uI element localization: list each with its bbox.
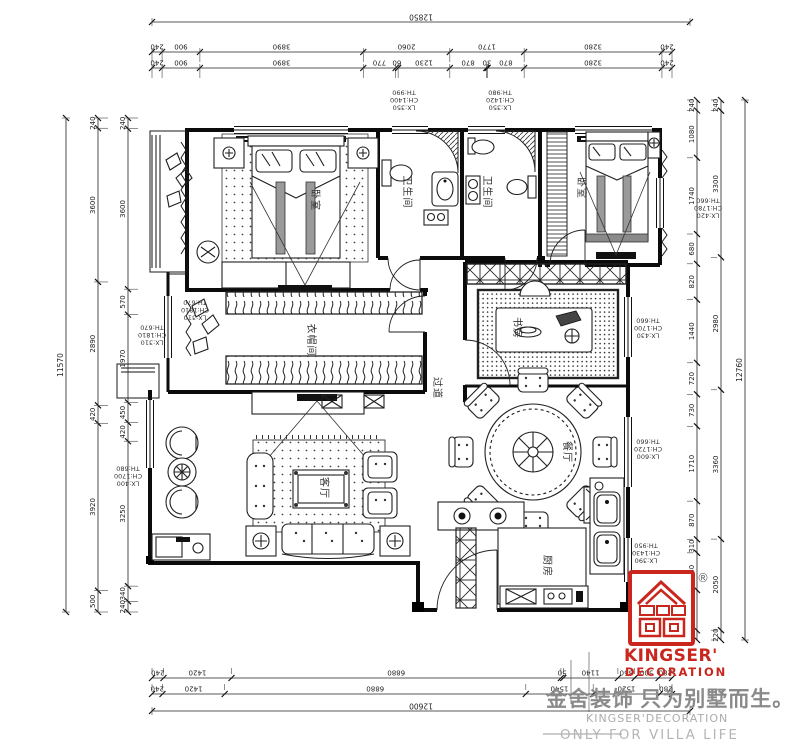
bed-headboard <box>586 132 648 141</box>
svg-text:1970: 1970 <box>119 350 127 368</box>
svg-text:820: 820 <box>688 275 696 288</box>
pillow <box>589 144 615 160</box>
svg-text:TH:660: TH:660 <box>636 317 660 325</box>
bedroom-master-furniture <box>197 134 378 292</box>
svg-text:3600: 3600 <box>89 196 97 214</box>
stove-counter <box>438 502 524 530</box>
bay-window-left <box>117 364 159 398</box>
bath-master-door <box>388 258 420 290</box>
study-furniture <box>467 264 626 378</box>
svg-text:TH:660: TH:660 <box>636 438 660 446</box>
svg-text:1140: 1140 <box>582 669 600 677</box>
svg-text:1080: 1080 <box>688 125 696 143</box>
svg-text:570: 570 <box>119 295 127 308</box>
toilet-tank <box>528 176 536 198</box>
svg-text:770: 770 <box>373 59 386 67</box>
room-label-kitchen: 厨房 <box>541 555 554 577</box>
svg-text:6880: 6880 <box>366 685 384 693</box>
dim-chain-left-total: 11570 <box>56 115 70 615</box>
svg-text:TH:680: TH:680 <box>116 465 140 473</box>
svg-text:3600: 3600 <box>119 200 127 218</box>
pillow <box>256 150 292 172</box>
svg-text:3300: 3300 <box>712 175 720 193</box>
svg-text:12760: 12760 <box>735 358 744 382</box>
window-label-right_kitchen: LX:390CH:1430TH:950 <box>632 542 660 565</box>
pillow <box>620 144 646 160</box>
window-label-right_dining: LX:600CH:1720TH:660 <box>634 438 662 461</box>
svg-text:1230: 1230 <box>415 59 433 67</box>
svg-text:420: 420 <box>89 408 97 421</box>
bed-foot-bench <box>586 234 648 242</box>
svg-text:240: 240 <box>660 59 673 67</box>
svg-text:310: 310 <box>688 539 696 552</box>
balcony-chair <box>166 427 198 459</box>
svg-text:240: 240 <box>119 600 127 613</box>
window-label-right_study: LX:430CH:1700TH:660 <box>634 317 662 340</box>
bathroom-guest-fixtures <box>466 131 536 204</box>
room-label-bedroom-second: 卧室 <box>575 177 588 199</box>
svg-text:3890: 3890 <box>273 59 291 67</box>
dim-chain-left-inner: 240360057019704504203250340240 <box>119 115 138 615</box>
svg-text:2890: 2890 <box>89 335 97 353</box>
living-room-furniture <box>152 392 410 560</box>
svg-text:870: 870 <box>688 514 696 527</box>
window-label-left_cloakroom_inner: LX:310CH:1810TH:670 <box>138 324 166 347</box>
svg-text:240: 240 <box>712 99 720 112</box>
brand-name: KINGSER' <box>624 646 718 666</box>
svg-text:3890: 3890 <box>273 43 291 51</box>
floor-plan-page: 卧室 卫生间 卫生间 卧室 衣帽间 过道 书房 餐厅 客厅 厨房 1285024… <box>0 0 800 755</box>
tv <box>278 285 332 292</box>
svg-text:1420: 1420 <box>185 685 203 693</box>
washer <box>466 176 480 204</box>
window-label-right_bedroom: LX:420CH:1780TH:660 <box>694 197 722 220</box>
dim-chain-top-row2: 2409003890770601230870308703280240 <box>149 59 675 79</box>
svg-text:870: 870 <box>461 59 474 67</box>
room-label-bathroom-master: 卫生间 <box>401 176 414 209</box>
room-label-bedroom-master: 卧室 <box>309 189 322 211</box>
room-label-cloakroom: 衣帽间 <box>305 324 318 357</box>
svg-text:3250: 3250 <box>119 505 127 523</box>
window-label-left_cloakroom_outer: LX:310CH:1810TH:670 <box>181 299 209 322</box>
svg-text:TH:990: TH:990 <box>392 89 416 97</box>
svg-text:TH:950: TH:950 <box>634 542 658 550</box>
room-label-hallway: 过道 <box>431 377 444 399</box>
svg-text:900: 900 <box>174 59 187 67</box>
registered-icon: ® <box>697 571 709 585</box>
svg-text:680: 680 <box>688 242 696 255</box>
dim-chain-right-outer: 2403300298033602050220 <box>711 97 724 643</box>
bathroom-master-fixtures <box>382 131 458 225</box>
svg-text:500: 500 <box>89 595 97 608</box>
svg-text:870: 870 <box>499 59 512 67</box>
bookshelf <box>467 264 626 284</box>
svg-text:2050: 2050 <box>712 576 720 594</box>
svg-text:2060: 2060 <box>398 43 416 51</box>
svg-text:11570: 11570 <box>56 353 65 377</box>
slogan-english-2: ONLY FOR VILLA LIFE <box>560 727 739 743</box>
bed-runner <box>276 182 285 254</box>
toilet <box>507 180 527 195</box>
cloakroom-furniture <box>186 292 422 384</box>
svg-text:720: 720 <box>688 372 696 385</box>
shower <box>416 131 458 173</box>
dim-chain-left-outer: 240360028904203920500 <box>89 115 108 615</box>
sofa <box>282 524 374 554</box>
chaise <box>247 453 273 519</box>
dim-chain-right-total: 12760 <box>735 97 749 643</box>
bedroom-second-furniture <box>547 132 660 259</box>
svg-text:1420: 1420 <box>189 669 207 677</box>
svg-text:240: 240 <box>688 99 696 112</box>
room-label-bathroom-guest: 卫生间 <box>481 176 494 209</box>
svg-text:1770: 1770 <box>478 43 496 51</box>
room-label-study: 书房 <box>511 317 524 339</box>
clothes-rack-top <box>226 292 422 314</box>
svg-text:TH:670: TH:670 <box>183 299 207 307</box>
svg-text:240: 240 <box>150 43 163 51</box>
svg-text:1740: 1740 <box>688 187 696 205</box>
svg-text:1440: 1440 <box>688 322 696 340</box>
svg-text:60: 60 <box>392 59 401 67</box>
room-label-living: 客厅 <box>318 477 331 499</box>
svg-text:420: 420 <box>119 425 127 438</box>
bed-headboard <box>248 136 344 146</box>
svg-text:240: 240 <box>89 116 97 129</box>
svg-text:30: 30 <box>483 59 492 67</box>
tv <box>596 252 636 259</box>
svg-text:6880: 6880 <box>387 669 405 677</box>
tall-cabinet <box>456 528 476 608</box>
brand-subtitle: DECORATION <box>625 665 727 679</box>
svg-text:2980: 2980 <box>712 315 720 333</box>
svg-text:240: 240 <box>151 669 164 677</box>
svg-text:TH:980: TH:980 <box>488 89 512 97</box>
svg-text:3360: 3360 <box>712 456 720 474</box>
bedroom-master-door <box>390 260 420 290</box>
svg-text:450: 450 <box>119 406 127 419</box>
slogan-english-1: KINGSER'DECORATION <box>586 712 728 725</box>
vanity <box>432 172 458 206</box>
svg-text:220: 220 <box>712 628 720 641</box>
svg-text:240: 240 <box>151 685 164 693</box>
svg-text:TH:670: TH:670 <box>140 324 164 332</box>
dim-chain-bottom-row1: 24014206880501140350500280 <box>149 668 675 681</box>
svg-text:50: 50 <box>558 669 567 677</box>
svg-text:240: 240 <box>150 59 163 67</box>
dim-chain-right-inner: 2401080174068082014407207301710870310850… <box>687 97 700 643</box>
window-label-top_bath_left: LX:350CH:1400TH:990 <box>390 89 418 112</box>
window-label-left_living: LX:400CH:1700TH:680 <box>114 465 142 488</box>
dim-chain-top-total: 12850 <box>149 13 693 27</box>
svg-text:TH:660: TH:660 <box>696 197 720 205</box>
svg-text:1710: 1710 <box>688 455 696 473</box>
svg-text:730: 730 <box>688 404 696 417</box>
svg-text:240: 240 <box>119 117 127 130</box>
clothes-rack-bottom <box>226 356 422 384</box>
window-label-top_bath_right: LX:350CH:1420TH:980 <box>486 89 514 112</box>
svg-text:340: 340 <box>119 587 127 600</box>
svg-text:3280: 3280 <box>584 59 602 67</box>
svg-text:12850: 12850 <box>409 13 433 22</box>
sink <box>472 140 494 154</box>
svg-text:3280: 3280 <box>584 43 602 51</box>
svg-text:12600: 12600 <box>409 702 433 711</box>
slogan-chinese: 金舍装饰 只为别墅而生。 <box>545 687 794 711</box>
floor-plan-svg: 卧室 卫生间 卫生间 卧室 衣帽间 过道 书房 餐厅 客厅 厨房 1285024… <box>0 0 800 755</box>
svg-text:240: 240 <box>660 43 673 51</box>
svg-text:3920: 3920 <box>89 498 97 516</box>
wardrobe <box>547 132 567 256</box>
shower <box>496 131 535 172</box>
pillow <box>300 150 336 172</box>
room-label-dining: 餐厅 <box>561 441 574 463</box>
svg-text:900: 900 <box>174 43 187 51</box>
balcony-chair <box>166 486 198 518</box>
